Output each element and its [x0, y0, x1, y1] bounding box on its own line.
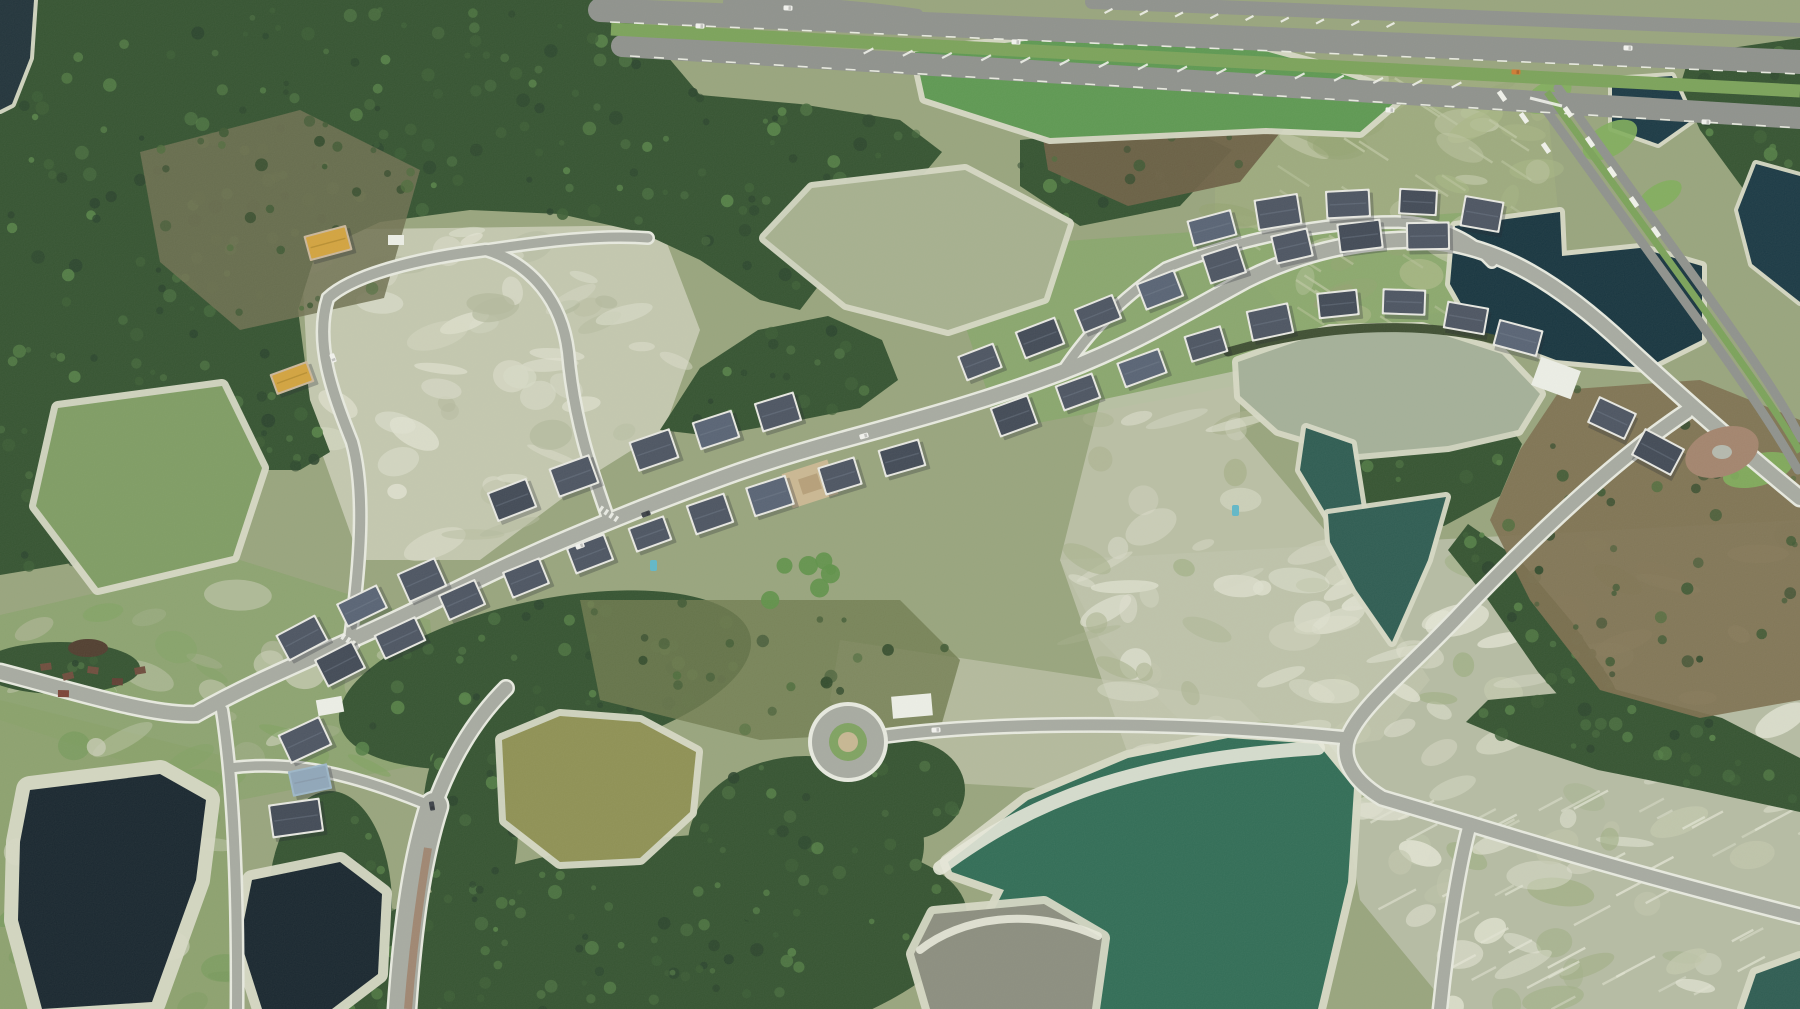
photo-grain-overlay: [0, 0, 1800, 1009]
aerial-scene-canvas: [0, 0, 1800, 1009]
aerial-photograph: Aerial photograph of a residential commu…: [0, 0, 1800, 1009]
